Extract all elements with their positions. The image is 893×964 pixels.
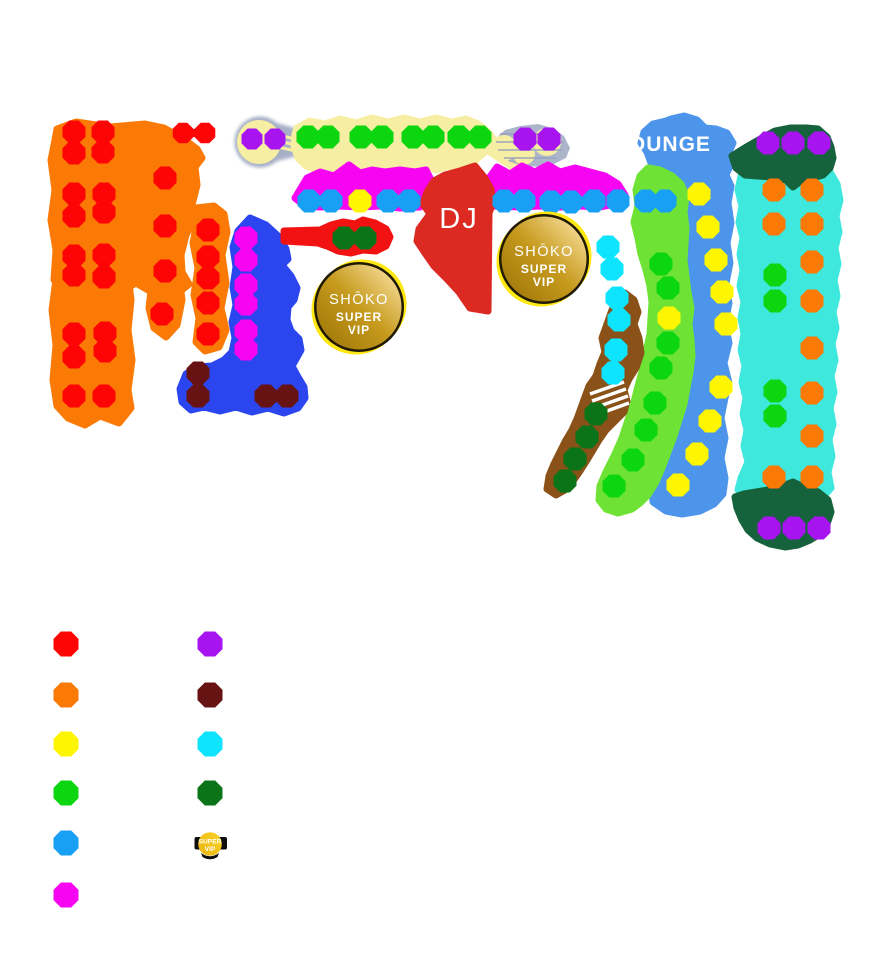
svg-text:VIP: VIP — [533, 275, 555, 289]
svg-text:DJ: DJ — [439, 203, 478, 235]
svg-text:LOUNGE: LOUNGE — [615, 133, 711, 156]
svg-text:VIP: VIP — [348, 323, 370, 337]
svg-text:SUPER: SUPER — [336, 310, 382, 324]
svg-text:SHŌKO: SHŌKO — [329, 292, 389, 308]
svg-text:SHŌKO: SHŌKO — [514, 244, 574, 260]
svg-text:VIP: VIP — [205, 846, 216, 853]
svg-text:SUPER: SUPER — [199, 839, 222, 846]
svg-text:SUPER: SUPER — [521, 262, 567, 276]
